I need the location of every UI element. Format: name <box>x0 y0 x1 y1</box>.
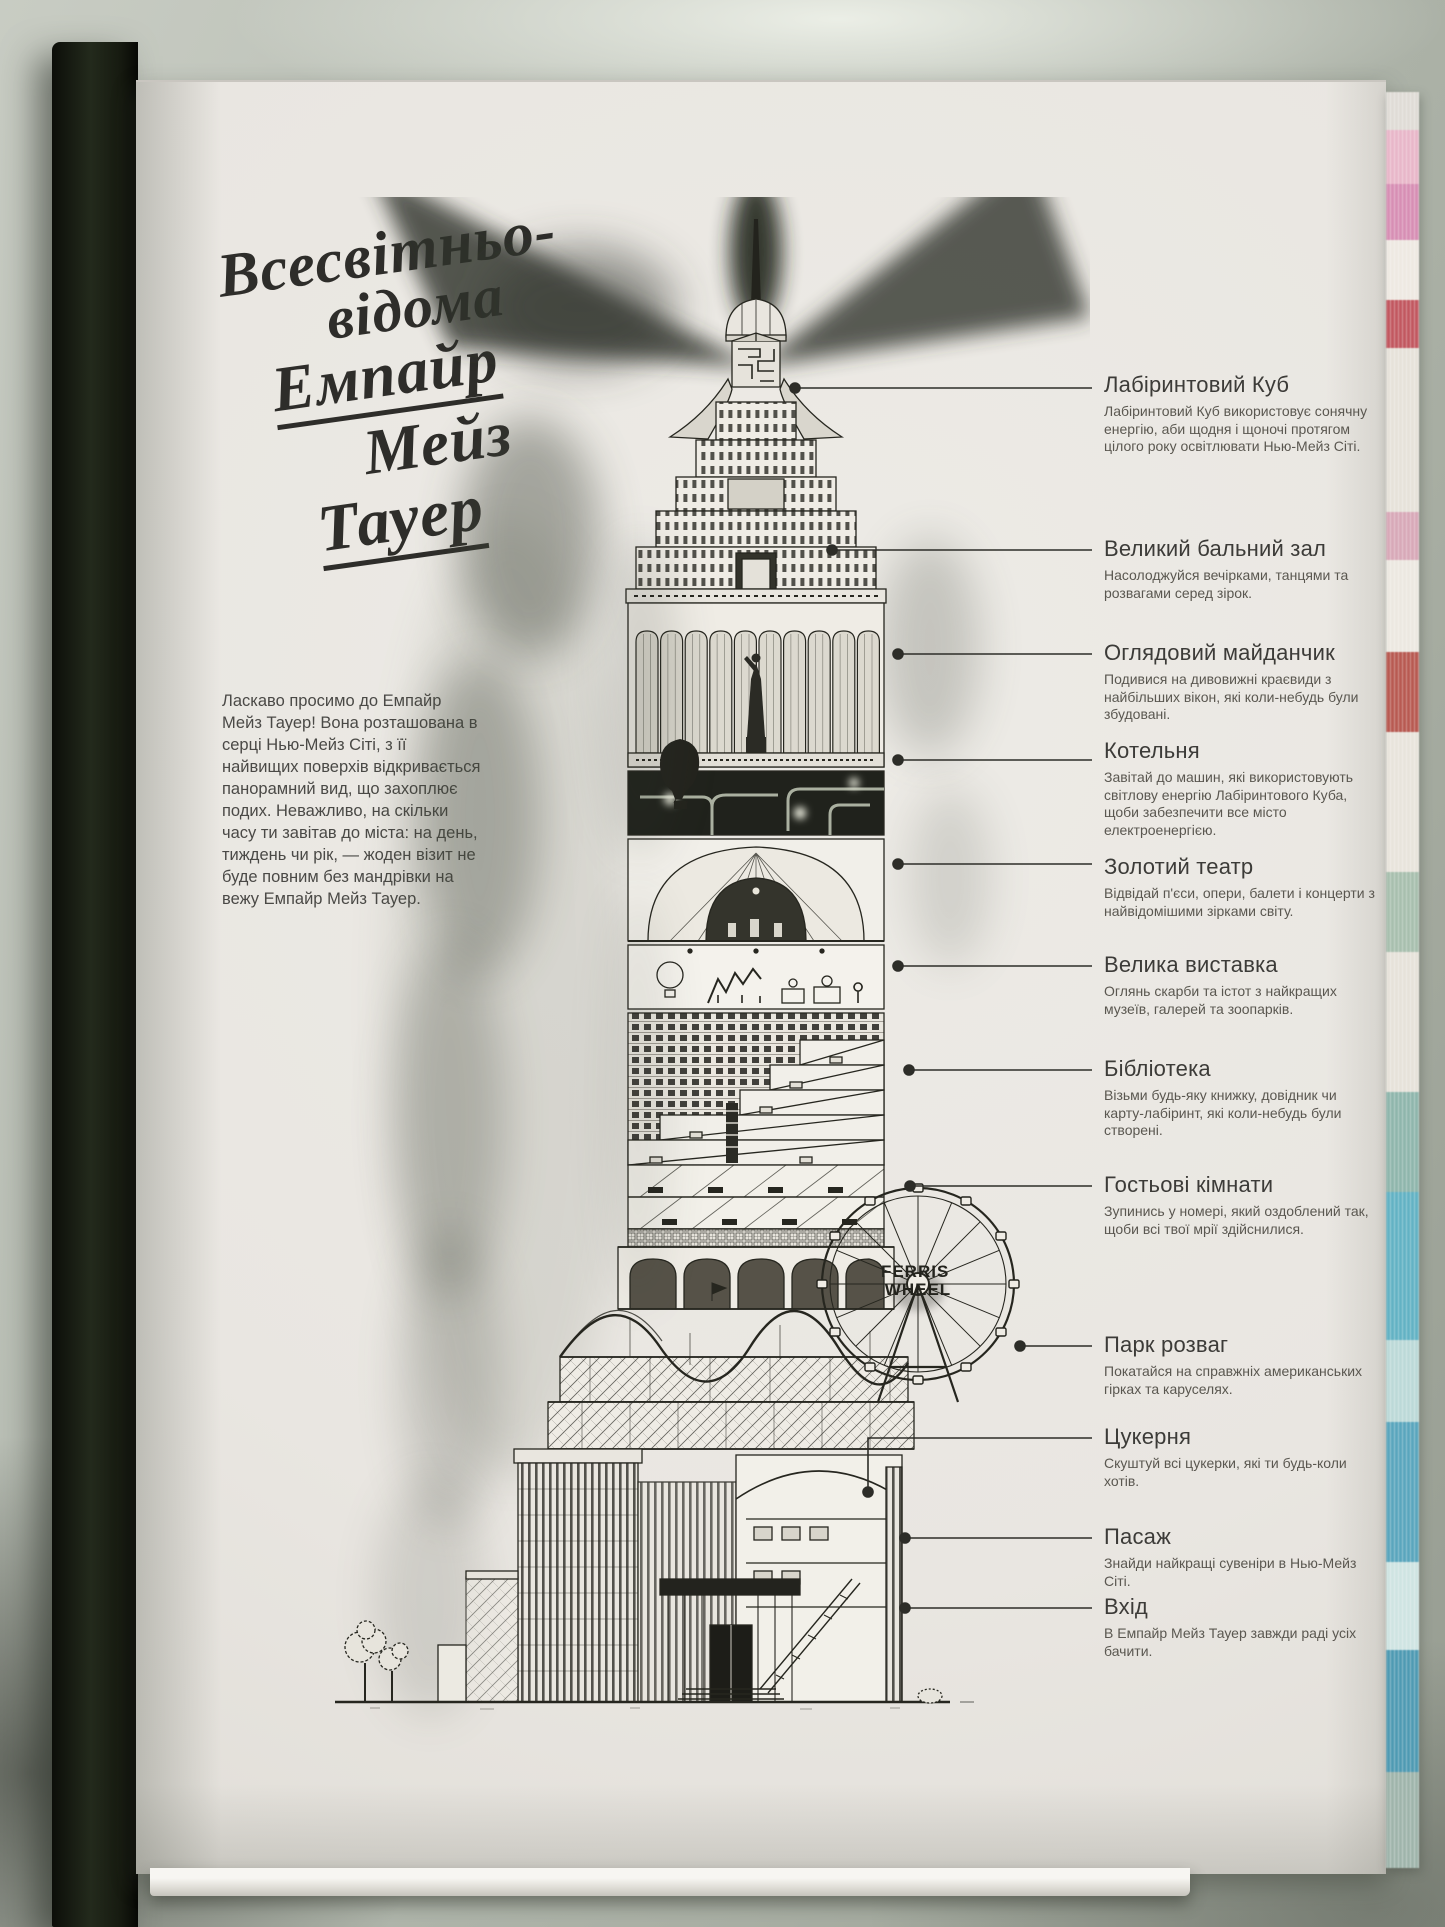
callout-great-exhibition: Велика виставка Оглянь скарби та істот з… <box>1104 952 1376 1018</box>
callout-title: Вхід <box>1104 1594 1376 1620</box>
callout-desc: Знайди найкращі сувеніри в Нью-Мейз Сіті… <box>1104 1555 1376 1590</box>
callout-title: Парк розваг <box>1104 1332 1376 1358</box>
callout-title: Бібліотека <box>1104 1056 1376 1082</box>
callout-title: Золотий театр <box>1104 854 1376 880</box>
callout-desc: Подивися на дивовижні краєвиди з найбіль… <box>1104 671 1376 724</box>
callout-desc: Завітай до машин, які використовують сві… <box>1104 769 1376 839</box>
callout-title: Великий бальний зал <box>1104 536 1376 562</box>
callout-title: Оглядовий майданчик <box>1104 640 1376 666</box>
callout-title: Гостьові кімнати <box>1104 1172 1376 1198</box>
callout-golden-theater: Золотий театр Відвідай п'єси, опери, бал… <box>1104 854 1376 920</box>
callout-title: Велика виставка <box>1104 952 1376 978</box>
callout-amusement-park: Парк розваг Покатайся на справжніх амери… <box>1104 1332 1376 1398</box>
book-page: Всесвітньо- відома Емпайр Мейз Тауер Лас… <box>136 80 1386 1874</box>
callout-desc: Скуштуй всі цукерки, які ти будь-коли хо… <box>1104 1455 1376 1490</box>
callout-desc: Лабіринтовий Куб використовує сонячну ен… <box>1104 403 1376 456</box>
callout-guest-rooms: Гостьові кімнати Зупинись у номері, який… <box>1104 1172 1376 1238</box>
callout-title: Лабіринтовий Куб <box>1104 372 1376 398</box>
callout-desc: Відвідай п'єси, опери, балети і концерти… <box>1104 885 1376 920</box>
book-photo: Всесвітньо- відома Емпайр Мейз Тауер Лас… <box>0 0 1445 1927</box>
callout-title: Пасаж <box>1104 1524 1376 1550</box>
callout-candy-shop: Цукерня Скуштуй всі цукерки, які ти будь… <box>1104 1424 1376 1490</box>
underlying-pages <box>150 1868 1190 1896</box>
callout-ballroom: Великий бальний зал Насолоджуйся вечірка… <box>1104 536 1376 602</box>
callout-observation-deck: Оглядовий майданчик Подивися на дивовижн… <box>1104 640 1376 724</box>
callout-library: Бібліотека Візьми будь-яку книжку, довід… <box>1104 1056 1376 1140</box>
callout-desc: Оглянь скарби та істот з найкращих музеї… <box>1104 983 1376 1018</box>
callout-desc: Зупинись у номері, який оздоблений так, … <box>1104 1203 1376 1238</box>
callout-desc: В Емпайр Мейз Тауер завжди раді усіх бач… <box>1104 1625 1376 1660</box>
callout-desc: Покатайся на справжніх американських гір… <box>1104 1363 1376 1398</box>
callout-title: Цукерня <box>1104 1424 1376 1450</box>
callout-boiler-room: Котельня Завітай до машин, які використо… <box>1104 738 1376 839</box>
callout-arcade: Пасаж Знайди найкращі сувеніри в Нью-Мей… <box>1104 1524 1376 1590</box>
callout-maze-cube: Лабіринтовий Куб Лабіринтовий Куб викори… <box>1104 372 1376 456</box>
book-cover-edge <box>52 42 138 1927</box>
callout-desc: Насолоджуйся вечірками, танцями та розва… <box>1104 567 1376 602</box>
callout-title: Котельня <box>1104 738 1376 764</box>
callout-entrance: Вхід В Емпайр Мейз Тауер завжди раді усі… <box>1104 1594 1376 1660</box>
page-fore-edge <box>1386 92 1419 1868</box>
callout-desc: Візьми будь-яку книжку, довідник чи карт… <box>1104 1087 1376 1140</box>
